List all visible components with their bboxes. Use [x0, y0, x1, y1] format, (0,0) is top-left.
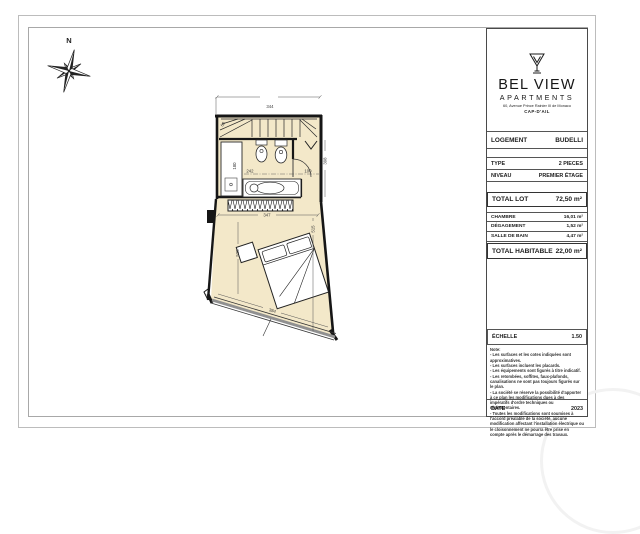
- field-niveau-value: PREMIER ÉTAGE: [539, 173, 583, 179]
- compass-north-label: N: [66, 36, 71, 45]
- field-logement-label: LOGEMENT: [491, 137, 527, 144]
- field-niveau-label: NIVEAU: [491, 173, 511, 179]
- dim-niche: 100: [304, 169, 312, 174]
- field-type-label: TYPE: [491, 161, 505, 167]
- field-chambre-label: CHAMBRE: [491, 215, 516, 220]
- field-chambre: CHAMBRE 16,01 m²: [487, 212, 587, 222]
- field-salle-de-bain: SALLE DE BAIN 4,47 m²: [487, 232, 587, 242]
- bathroom-bidet: [256, 140, 267, 162]
- field-date: DATE 2023: [487, 400, 587, 418]
- bel-view-logo-icon: [528, 52, 546, 76]
- field-logement: LOGEMENT BUDELLI: [487, 132, 587, 149]
- field-degagement: DÉGAGEMENT 1,52 m²: [487, 222, 587, 232]
- dim-stair-width: 344: [266, 104, 274, 109]
- dim-right-wall: 398: [323, 157, 328, 165]
- notes: Note: - Les surfaces et les cotes indiqu…: [487, 345, 587, 400]
- floor-plan: 344 60 180 242 100 398 347 515 525 384: [195, 88, 345, 350]
- entry-tick: [263, 319, 271, 336]
- compass-rose-icon: N: [45, 33, 95, 97]
- field-total-lot-label: TOTAL LOT: [492, 196, 528, 203]
- field-echelle-value: 1.50: [572, 334, 583, 340]
- plan-sheet: { "compass": { "north_label": "N" }, "ti…: [0, 0, 640, 459]
- field-spacer: [487, 149, 587, 158]
- field-niveau: NIVEAU PREMIER ÉTAGE: [487, 170, 587, 182]
- field-degagement-label: DÉGAGEMENT: [491, 224, 525, 229]
- field-total-habitable: TOTAL HABITABLE 22,00 m²: [487, 243, 587, 259]
- dim-bedroom-depth-left: 525: [235, 249, 240, 257]
- field-total-lot-value: 72,50 m²: [556, 196, 582, 203]
- field-chambre-value: 16,01 m²: [564, 215, 583, 220]
- brand-name: BEL VIEW: [498, 78, 576, 93]
- field-echelle-label: ÉCHELLE: [492, 334, 517, 340]
- dim-bedroom-width: 347: [263, 213, 271, 218]
- wall-pilaster: [207, 210, 214, 223]
- brand-address: 60, Avenue Prince Rainier III de Monaco: [503, 104, 571, 108]
- wardrobe: [228, 200, 293, 211]
- dim-bedroom-depth-right: 515: [311, 225, 316, 233]
- field-date-value: 2023: [571, 406, 583, 412]
- note-line: - Les équipements sont figurés à titre i…: [490, 368, 584, 373]
- brand-subtitle: APARTMENTS: [500, 94, 574, 101]
- bathtub: [243, 179, 301, 197]
- field-total-habitable-label: TOTAL HABITABLE: [492, 248, 553, 255]
- field-total-habitable-value: 22,00 m²: [556, 248, 582, 255]
- field-date-label: DATE: [491, 406, 505, 412]
- note-line: - Les surfaces et les cotes indiquées so…: [490, 352, 584, 363]
- field-degagement-value: 1,52 m²: [566, 224, 583, 229]
- field-logement-value: BUDELLI: [555, 137, 583, 144]
- field-type: TYPE 2 PIECES: [487, 158, 587, 170]
- field-salle-de-bain-label: SALLE DE BAIN: [491, 234, 528, 239]
- dim-bathtub: 242: [246, 169, 254, 174]
- note-line: - Les retombées, soffites, faux-plafonds…: [490, 374, 584, 390]
- title-block-header: BEL VIEW APARTMENTS 60, Avenue Prince Ra…: [487, 29, 587, 132]
- field-total-lot: TOTAL LOT 72,50 m²: [487, 192, 587, 207]
- bathroom-wc: [275, 140, 287, 163]
- title-block: BEL VIEW APARTMENTS 60, Avenue Prince Ra…: [486, 28, 588, 417]
- field-type-value: 2 PIECES: [559, 161, 583, 167]
- dim-shower: 180: [232, 162, 237, 170]
- brand-city: CAP-D'AIL: [524, 109, 550, 114]
- field-echelle: ÉCHELLE 1.50: [487, 329, 587, 345]
- field-salle-de-bain-value: 4,47 m²: [566, 234, 583, 239]
